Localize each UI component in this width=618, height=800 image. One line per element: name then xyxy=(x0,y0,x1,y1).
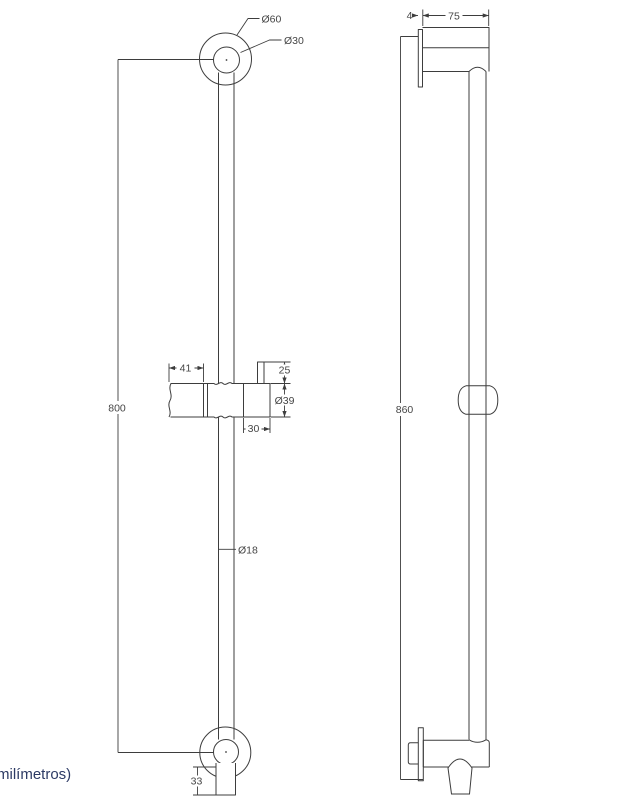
bar-shoulder-arc xyxy=(469,67,486,71)
leader-line-d30 xyxy=(241,40,282,53)
break-line xyxy=(169,384,171,418)
dim-label-bar-diameter: Ø18 xyxy=(238,545,258,557)
leader-line-d60 xyxy=(237,19,260,36)
side-bar-lines xyxy=(469,72,486,740)
dim-label-plate-thickness: 4 xyxy=(407,10,413,22)
dim-label-side-overall-height: 860 xyxy=(396,404,414,416)
shower-slide-bar-drawing: Ø60 Ø30 800 41 xyxy=(0,0,618,800)
dim-grip-length-41: 41 xyxy=(169,363,204,383)
handle-holder-cone xyxy=(448,759,472,794)
side-view: 4 75 860 xyxy=(393,10,498,795)
dim-label-overall-height: 800 xyxy=(108,403,126,415)
dim-label-outlet-height: 33 xyxy=(191,776,203,788)
dim-label-bracket-width: 30 xyxy=(248,423,260,435)
center-mark xyxy=(226,59,228,61)
wall-plate xyxy=(418,728,423,781)
dim-outlet-height-33: 33 xyxy=(190,767,216,795)
dim-label-grip-length: 41 xyxy=(180,363,192,375)
front-bottom-mount xyxy=(200,727,251,795)
wall-plate xyxy=(418,30,422,88)
side-bottom-mount xyxy=(408,728,489,794)
side-slider-knob xyxy=(458,386,498,415)
dim-label-post-height: 25 xyxy=(279,365,291,377)
dim-label-body-diameter: Ø39 xyxy=(275,395,295,407)
dim-post-height-25: 25 xyxy=(264,362,292,384)
front-top-mount: Ø60 Ø30 xyxy=(200,14,305,86)
dim-bar-diameter-18: Ø18 xyxy=(219,545,259,557)
dim-bracket-width-30: 30 xyxy=(244,418,271,435)
front-view: Ø60 Ø30 800 41 xyxy=(105,14,304,796)
dim-label-top-outer-diameter: Ø60 xyxy=(262,14,282,26)
water-inlet-block xyxy=(408,743,418,764)
dim-plate-thickness-4: 4 xyxy=(407,10,418,22)
dim-overall-height-860: 860 xyxy=(393,37,424,780)
dim-label-top-inner-diameter: Ø30 xyxy=(284,35,304,47)
slider-post xyxy=(258,362,265,384)
units-note: milímetros) xyxy=(0,766,71,783)
technical-drawing-page: Ø60 Ø30 800 41 xyxy=(0,0,618,800)
front-bar-lines xyxy=(219,73,235,740)
dim-overall-height-800: 800 xyxy=(105,60,214,753)
dim-body-diameter-39: Ø39 xyxy=(271,384,296,418)
center-mark xyxy=(225,751,227,753)
dim-label-mount-depth: 75 xyxy=(448,11,460,23)
side-top-mount xyxy=(418,28,489,88)
dim-mount-depth-75: 75 xyxy=(423,10,489,27)
